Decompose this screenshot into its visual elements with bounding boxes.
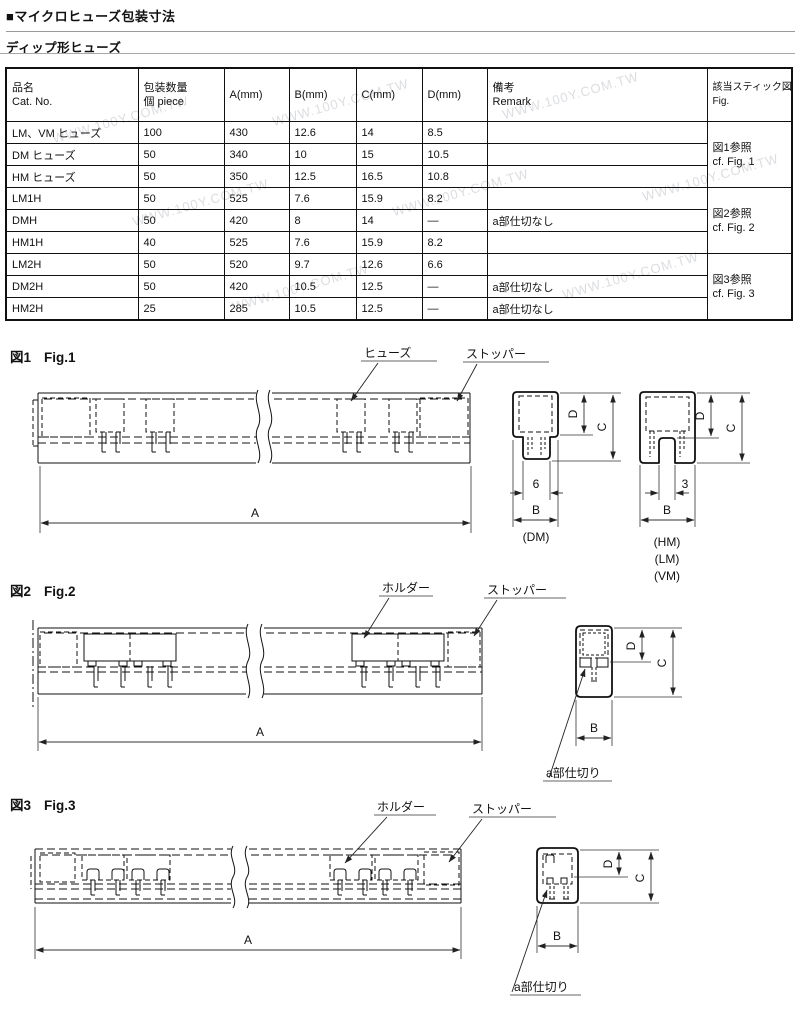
table-row: DMH 50 420 8 14 — a部仕切なし	[6, 210, 792, 232]
holder-label: ホルダー	[377, 799, 425, 814]
fig3-stick-drawing	[31, 846, 461, 908]
dim-c-label: C	[633, 873, 647, 882]
cell-c: 12.5	[356, 298, 422, 321]
cell-a: 525	[224, 188, 289, 210]
cell-qty: 50	[138, 276, 224, 298]
cell-a: 420	[224, 276, 289, 298]
cell-d: 8.2	[422, 232, 487, 254]
fig3-stopper-callout: ストッパー	[449, 802, 556, 862]
figure-3-caption: Fig.3	[44, 798, 76, 813]
cell-name: LM1H	[6, 188, 138, 210]
cell-remark: a部仕切なし	[487, 298, 707, 321]
cell-a: 525	[224, 232, 289, 254]
cell-qty: 50	[138, 166, 224, 188]
cell-name: HM ヒューズ	[6, 166, 138, 188]
fig1-dim-a: A	[40, 466, 471, 533]
cell-figref: 図2参照cf. Fig. 2	[707, 188, 792, 254]
cell-qty: 50	[138, 188, 224, 210]
figure-1-caption: Fig.1	[44, 350, 76, 365]
col-header-fig: 該当スティック図面Fig.	[707, 68, 792, 122]
cell-remark	[487, 122, 707, 144]
fig2-dim-a: A	[38, 697, 482, 751]
fig1-fuse-box	[96, 399, 124, 432]
fig1-right-stopper	[420, 398, 468, 437]
dim-3-label: 3	[682, 477, 689, 491]
table-row: LM1H 50 525 7.6 15.9 8.2 図2参照cf. Fig. 2	[6, 188, 792, 210]
cell-b: 12.6	[289, 122, 356, 144]
fig2-partition-a	[597, 658, 608, 667]
cell-c: 12.5	[356, 276, 422, 298]
page-title: ■マイクロヒューズ包装寸法	[6, 6, 175, 25]
cell-a: 520	[224, 254, 289, 276]
figure-3: 図3 Fig.3 ホルダー	[10, 798, 659, 995]
cell-qty: 50	[138, 254, 224, 276]
cell-d: —	[422, 298, 487, 321]
dim-c-label: C	[724, 423, 738, 432]
section-vm-label: (VM)	[654, 569, 680, 583]
cell-qty: 100	[138, 122, 224, 144]
fig1-fuse-box	[337, 399, 365, 432]
dim-a-label: A	[256, 725, 264, 739]
fig3-left-stopper	[40, 853, 75, 882]
cell-name: HM1H	[6, 232, 138, 254]
cell-b: 10	[289, 144, 356, 166]
cell-d: —	[422, 210, 487, 232]
dim-a-label: A	[244, 933, 252, 947]
fig2-holder-feet	[88, 661, 439, 666]
fuse-label: ヒューズ	[364, 345, 411, 360]
dim-6-label: 6	[533, 477, 540, 491]
fig3-holder-box	[375, 855, 418, 880]
fig3-holder-box	[127, 855, 170, 880]
fig2-stopper-callout: ストッパー	[474, 583, 566, 636]
stopper-label: ストッパー	[466, 347, 526, 361]
col-header-c: C(mm)	[356, 68, 422, 122]
cell-c: 15	[356, 144, 422, 166]
dim-d-label: D	[601, 859, 615, 868]
cell-name: DMH	[6, 210, 138, 232]
cell-a: 340	[224, 144, 289, 166]
fig2-partition-callout: a部仕切り	[543, 669, 612, 781]
table-row: LM2H 50 520 9.7 12.6 6.6 図3参照cf. Fig. 3	[6, 254, 792, 276]
cell-remark: a部仕切なし	[487, 210, 707, 232]
cell-remark	[487, 254, 707, 276]
cell-qty: 25	[138, 298, 224, 321]
holder-label: ホルダー	[382, 580, 430, 595]
figures-canvas: 図1 Fig.1 ヒューズ ストッパー	[0, 335, 800, 1011]
cell-b: 12.5	[289, 166, 356, 188]
cell-c: 14	[356, 210, 422, 232]
table-row: DM2H 50 420 10.5 12.5 — a部仕切なし	[6, 276, 792, 298]
cell-c: 14	[356, 122, 422, 144]
cell-d: 8.5	[422, 122, 487, 144]
cell-qty: 40	[138, 232, 224, 254]
cell-name: HM2H	[6, 298, 138, 321]
stopper-label: ストッパー	[472, 802, 532, 816]
cell-name: DM2H	[6, 276, 138, 298]
figure-1: 図1 Fig.1 ヒューズ ストッパー	[10, 345, 750, 583]
dim-d-label: D	[693, 411, 707, 420]
figure-2-number: 図2	[10, 584, 31, 599]
fig3-partition-callout: a部仕切り	[510, 890, 581, 995]
dim-b-label: B	[590, 721, 598, 735]
partition-label: a部仕切り	[546, 765, 601, 780]
fig3-pins	[91, 880, 412, 895]
section-dm-label: (DM)	[523, 530, 550, 544]
fig3-fuse-clips	[87, 869, 416, 880]
dim-b-label: B	[553, 929, 561, 943]
dim-d-label: D	[624, 641, 638, 650]
cell-figref: 図1参照cf. Fig. 1	[707, 122, 792, 188]
figure-3-number: 図3	[10, 798, 31, 813]
fig2-section: D C B	[576, 626, 682, 746]
cell-b: 8	[289, 210, 356, 232]
cell-b: 7.6	[289, 232, 356, 254]
cell-name: LM、VM ヒューズ	[6, 122, 138, 144]
col-header-qty: 包装数量個 piece	[138, 68, 224, 122]
col-header-remark: 備考Remark	[487, 68, 707, 122]
fig2-pins	[94, 666, 440, 687]
dim-b-label: B	[532, 503, 540, 517]
cell-c: 16.5	[356, 166, 422, 188]
fig1-fuse-box	[389, 399, 417, 432]
catalog-page: ■マイクロヒューズ包装寸法 ディップ形ヒューズ WWW.100Y.COM.TW …	[0, 0, 800, 1011]
subtitle-divider	[0, 53, 795, 54]
cell-b: 10.5	[289, 276, 356, 298]
section-lm-label: (LM)	[655, 552, 680, 566]
cell-b: 9.7	[289, 254, 356, 276]
fig3-right-stopper	[424, 852, 459, 885]
table-header-row: 品名Cat. No. 包装数量個 piece A(mm) B(mm) C(mm)…	[6, 68, 792, 122]
cell-c: 15.9	[356, 188, 422, 210]
cell-d: —	[422, 276, 487, 298]
cell-name: LM2H	[6, 254, 138, 276]
cell-a: 285	[224, 298, 289, 321]
cell-c: 12.6	[356, 254, 422, 276]
cell-d: 10.5	[422, 144, 487, 166]
cell-d: 8.2	[422, 188, 487, 210]
cell-d: 10.8	[422, 166, 487, 188]
cell-remark	[487, 144, 707, 166]
cell-remark	[487, 166, 707, 188]
fig3-holder-box	[82, 855, 124, 880]
fig1-fuse-box	[146, 399, 174, 432]
col-header-d: D(mm)	[422, 68, 487, 122]
table-row: DM ヒューズ 50 340 10 15 10.5	[6, 144, 792, 166]
fig3-section-clip	[546, 855, 554, 863]
fig3-holder-box	[330, 855, 372, 880]
fig2-left-stopper	[40, 632, 77, 667]
cell-c: 15.9	[356, 232, 422, 254]
cell-qty: 50	[138, 144, 224, 166]
partition-label: a部仕切り	[514, 979, 569, 994]
fig3-holder-callout: ホルダー	[345, 799, 436, 863]
section-hm-label: (HM)	[654, 535, 681, 549]
table-row: LM、VM ヒューズ 100 430 12.6 14 8.5 図1参照cf. F…	[6, 122, 792, 144]
spec-table: 品名Cat. No. 包装数量個 piece A(mm) B(mm) C(mm)…	[5, 67, 793, 321]
figure-2-caption: Fig.2	[44, 584, 76, 599]
figure-1-number: 図1	[10, 350, 31, 365]
dim-a-label: A	[251, 506, 259, 520]
col-header-a: A(mm)	[224, 68, 289, 122]
fig3-partition-a	[547, 878, 567, 884]
cell-figref: 図3参照cf. Fig. 3	[707, 254, 792, 321]
fig1-section-dm: D C 6 B (DM)	[510, 392, 621, 544]
dim-c-label: C	[595, 422, 609, 431]
fig3-section: D C B	[537, 848, 659, 953]
cell-d: 6.6	[422, 254, 487, 276]
cell-a: 350	[224, 166, 289, 188]
col-header-name: 品名Cat. No.	[6, 68, 138, 122]
dim-c-label: C	[655, 658, 669, 667]
cell-remark	[487, 232, 707, 254]
fig2-partition-a	[580, 658, 591, 667]
title-divider	[6, 31, 795, 32]
table-row: HM1H 40 525 7.6 15.9 8.2	[6, 232, 792, 254]
fig3-dim-a: A	[35, 907, 461, 959]
cell-qty: 50	[138, 210, 224, 232]
stopper-label: ストッパー	[487, 583, 547, 597]
col-header-b: B(mm)	[289, 68, 356, 122]
figure-2: 図2 Fig.2 ホルダー ス	[10, 580, 682, 781]
table-row: HM ヒューズ 50 350 12.5 16.5 10.8	[6, 166, 792, 188]
cell-remark	[487, 188, 707, 210]
cell-b: 7.6	[289, 188, 356, 210]
cell-remark: a部仕切なし	[487, 276, 707, 298]
fig1-left-stopper	[42, 398, 90, 437]
dim-d-label: D	[566, 409, 580, 418]
fig1-stick-drawing	[33, 390, 470, 463]
dim-b-label: B	[663, 503, 671, 517]
fig2-holder-callout: ホルダー	[364, 580, 433, 638]
cell-name: DM ヒューズ	[6, 144, 138, 166]
fig2-right-stopper	[448, 632, 480, 667]
cell-a: 420	[224, 210, 289, 232]
table-row: HM2H 25 285 10.5 12.5 — a部仕切なし	[6, 298, 792, 321]
cell-a: 430	[224, 122, 289, 144]
fig2-stick-drawing	[33, 620, 482, 708]
cell-b: 10.5	[289, 298, 356, 321]
fig1-section-hm: D C 3 B (HM) (LM) (VM)	[640, 392, 750, 583]
